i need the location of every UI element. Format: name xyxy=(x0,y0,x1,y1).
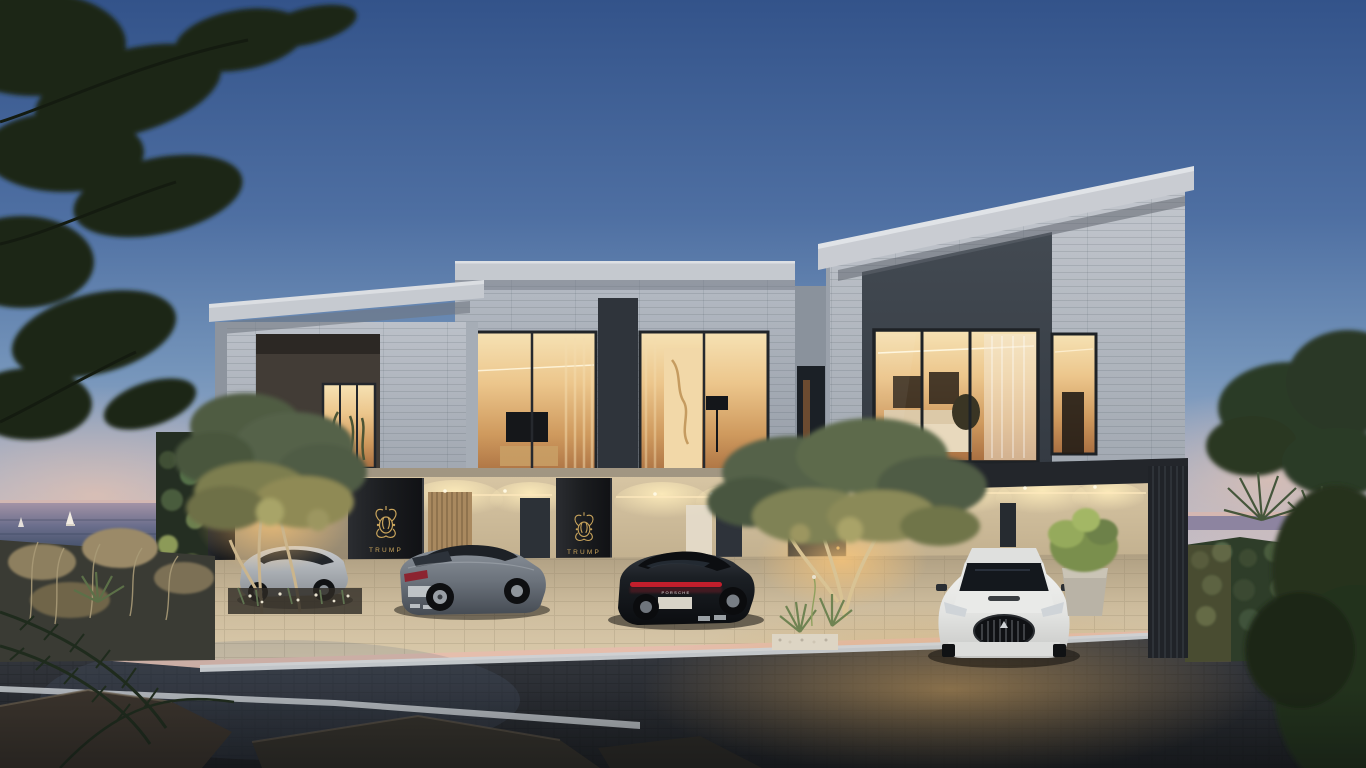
wall-tv xyxy=(506,412,548,442)
entry-planter-box xyxy=(772,634,838,650)
wall-frame xyxy=(929,372,959,404)
bottom-vignette xyxy=(0,688,1366,768)
slatted-pillar-right xyxy=(1148,466,1188,658)
side-mirror xyxy=(936,584,947,591)
car-badge-label: PORSCHE xyxy=(662,590,691,595)
license-plate xyxy=(658,597,692,609)
middle-roof-fascia xyxy=(455,262,795,280)
crest-label-center: TRUMP xyxy=(567,549,601,556)
rear-wall-slit xyxy=(1000,503,1016,547)
middle-window-bedroom xyxy=(468,332,596,478)
middle-center-mullion-panel xyxy=(598,298,638,480)
windshield xyxy=(958,563,1050,591)
scene-canvas: TRUMP TRUMP xyxy=(0,0,1366,768)
flower-bed-carport1 xyxy=(228,588,362,614)
table-lamp xyxy=(706,396,728,410)
indoor-plant xyxy=(952,394,980,430)
crest-label-left: TRUMP xyxy=(369,547,403,554)
tail-light-bar xyxy=(630,582,722,587)
right-window-small xyxy=(1052,334,1096,454)
architectural-render: TRUMP TRUMP xyxy=(0,0,1366,768)
lit-art-panel xyxy=(664,348,702,470)
hood-vent xyxy=(988,596,1020,601)
